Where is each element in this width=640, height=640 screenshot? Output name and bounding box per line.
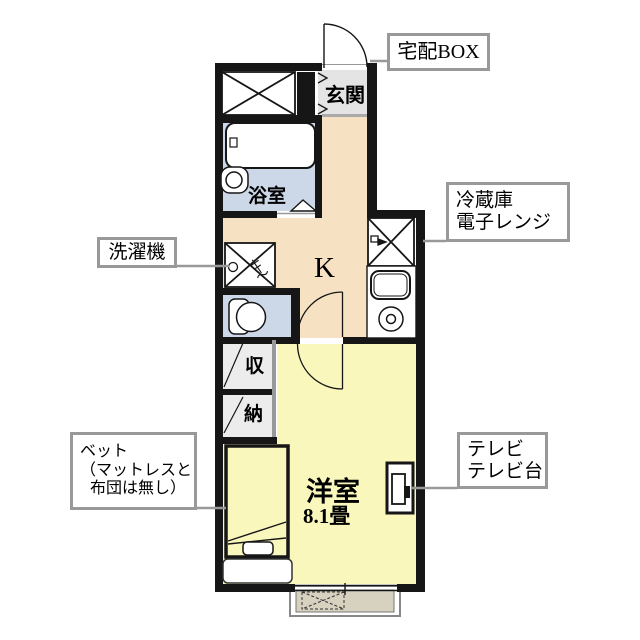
wall-top [215,63,322,71]
wall-bottom-right [397,584,425,592]
closet-door-track [272,340,276,437]
bed-step-box [223,559,292,583]
fridge-label: 冷蔵庫 電子レンジ [446,182,570,242]
western-room-size: 8.1畳 [303,500,350,530]
kitchen-counter [367,266,416,338]
tv-label-line1: テレビ [467,439,524,461]
washbasin-icon [221,167,248,193]
wall-right [416,210,425,592]
wall-pillar [297,72,315,115]
washer-label-text: 洗濯機 [108,242,165,264]
wall-bathroom-bottom [215,211,277,218]
floor-plan-drawing [0,0,640,640]
closet-name-top: 収 [245,351,264,378]
bathtub-icon [226,123,315,168]
tv-label-line2: テレビ台 [467,461,543,483]
washing-machine-box [225,243,275,287]
wall-right-upper [367,63,377,217]
wall-under-entrance [215,115,322,123]
delivery-box-label-text: 宅配BOX [397,41,479,64]
fridge-label-line2: 電子レンジ [456,212,551,234]
tv-label: テレビ テレビ台 [457,432,548,489]
sink-icon [371,271,410,299]
tv-icon [387,463,413,513]
closet-name-bottom: 納 [244,399,263,426]
wall-room-top-left [215,337,298,344]
kitchen-name: K [314,252,335,285]
wall-bathroom-right [315,115,322,218]
bed-icon [226,446,288,557]
storage-x-box [222,72,295,115]
wall-toilet-top [215,288,300,295]
pillow-icon [243,542,273,555]
bed-label: ベット （マットレスと 布団は無し） [70,432,197,510]
wall-bottom-left [215,584,295,592]
bathroom-name: 浴室 [248,181,286,208]
wall-closet-bottom [215,437,277,444]
bed-label-line3: 布団は無し） [80,480,186,498]
entrance-name: 玄関 [325,79,365,108]
bed-label-line1: ベット [80,443,128,461]
wall-toilet-right [291,288,300,344]
entrance-step-line [322,114,367,117]
wall-closet-divider [222,389,272,395]
entrance-door-arc [322,24,367,68]
delivery-box-label: 宅配BOX [387,33,490,71]
bed-label-line2: （マットレスと [80,462,192,480]
floor-plan: 宅配BOX 冷蔵庫 電子レンジ 洗濯機 ベット （マットレスと 布団は無し） テ… [0,0,640,640]
washer-label: 洗濯機 [97,237,177,268]
fridge-label-line1: 冷蔵庫 [456,190,513,212]
wall-left [215,63,223,592]
